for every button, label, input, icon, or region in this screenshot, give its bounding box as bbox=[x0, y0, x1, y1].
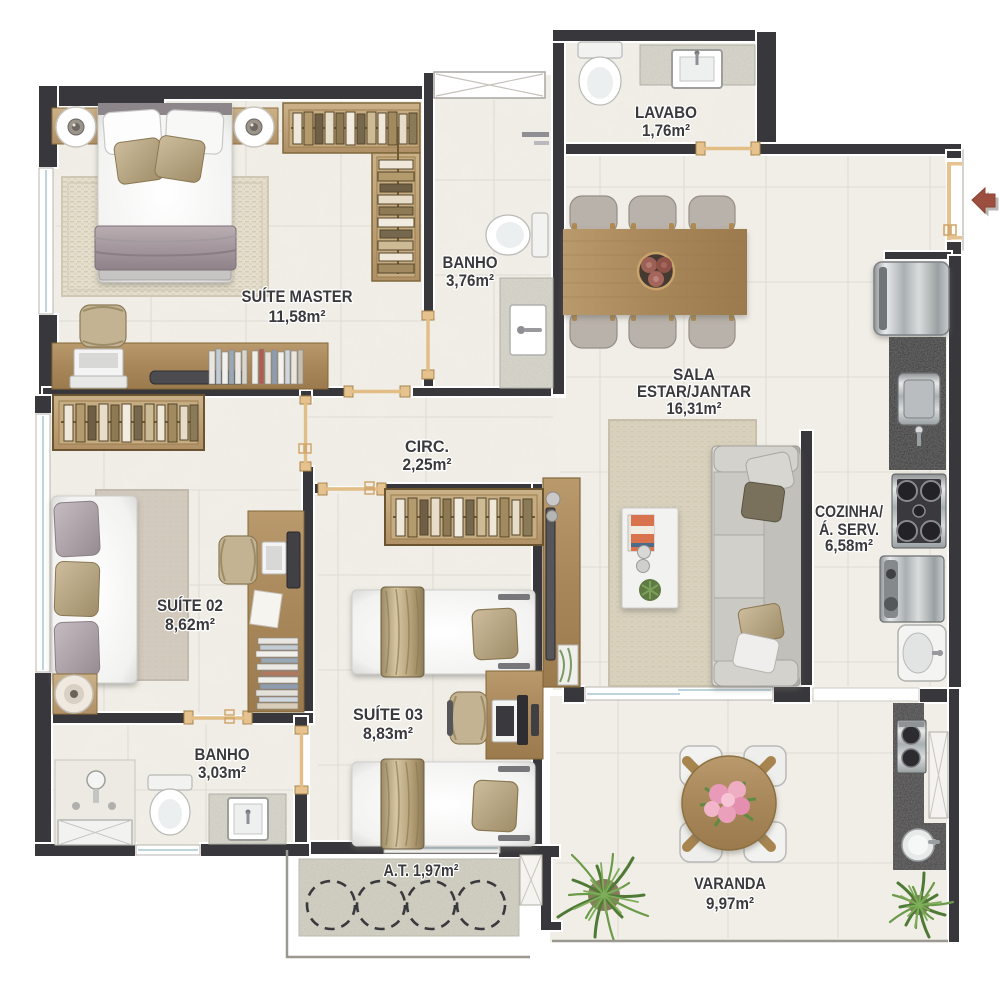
svg-text:2,25m²: 2,25m² bbox=[403, 456, 452, 474]
svg-text:SUÍTE MASTER: SUÍTE MASTER bbox=[242, 287, 353, 306]
svg-text:SUÍTE 03: SUÍTE 03 bbox=[353, 705, 423, 724]
svg-text:6,58m²: 6,58m² bbox=[825, 537, 873, 555]
svg-text:16,31m²: 16,31m² bbox=[667, 400, 722, 418]
svg-text:CIRC.: CIRC. bbox=[405, 437, 449, 456]
svg-text:9,97m²: 9,97m² bbox=[706, 895, 754, 913]
svg-text:8,62m²: 8,62m² bbox=[165, 616, 215, 634]
svg-text:SUÍTE 02: SUÍTE 02 bbox=[157, 596, 223, 615]
svg-text:COZINHA/: COZINHA/ bbox=[815, 502, 883, 521]
svg-text:3,76m²: 3,76m² bbox=[446, 272, 494, 290]
svg-text:BANHO: BANHO bbox=[195, 745, 250, 764]
svg-text:ESTAR/JANTAR: ESTAR/JANTAR bbox=[637, 382, 751, 401]
svg-text:A.T. 1,97m²: A.T. 1,97m² bbox=[384, 861, 459, 880]
svg-text:LAVABO: LAVABO bbox=[635, 103, 697, 122]
svg-text:VARANDA: VARANDA bbox=[694, 874, 766, 893]
svg-text:8,83m²: 8,83m² bbox=[363, 725, 413, 743]
svg-text:3,03m²: 3,03m² bbox=[198, 764, 246, 782]
svg-text:1,76m²: 1,76m² bbox=[642, 122, 690, 140]
svg-text:11,58m²: 11,58m² bbox=[269, 308, 326, 326]
svg-text:BANHO: BANHO bbox=[443, 253, 498, 272]
